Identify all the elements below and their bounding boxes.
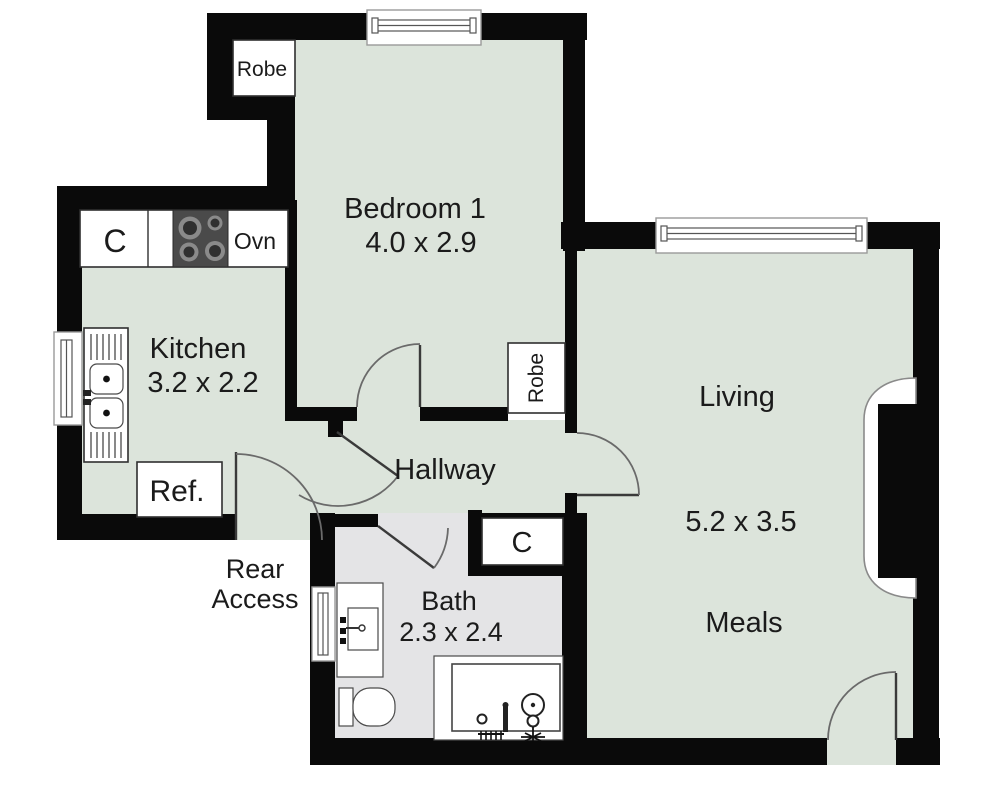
recess-panel xyxy=(878,404,918,578)
bathtub-icon xyxy=(434,656,563,741)
bath-dims: 2.3 x 2.4 xyxy=(399,617,503,647)
sink-tap-icon xyxy=(83,390,91,396)
bath-window-icon xyxy=(312,587,335,661)
rear-access-opening xyxy=(236,514,310,540)
robe-side-label: Robe xyxy=(525,353,548,403)
toilet-icon xyxy=(339,688,395,726)
kitchen-cupboard-label: C xyxy=(103,223,126,259)
bedroom1-dims: 4.0 x 2.9 xyxy=(365,227,476,259)
bath-door-opening xyxy=(378,513,468,527)
bedroom1-label: Bedroom 1 xyxy=(344,193,486,225)
floorplan-page: Bedroom 1 4.0 x 2.9 Kitchen 3.2 x 2.2 Ha… xyxy=(0,0,1000,796)
rear-access-label-2: Access xyxy=(211,584,298,614)
bedroom-window-icon xyxy=(367,10,481,45)
fridge-label: Ref. xyxy=(149,475,204,508)
living-meals-floor xyxy=(577,249,913,738)
bedroom-door-opening xyxy=(357,407,420,421)
kitchen-window-icon xyxy=(54,332,82,425)
living-door-opening xyxy=(565,433,577,493)
meals-label: Meals xyxy=(705,607,782,639)
oven-label: Ovn xyxy=(234,228,276,254)
kitchen-dims: 3.2 x 2.2 xyxy=(147,367,258,399)
living-window-icon xyxy=(656,218,867,253)
cooktop-icon xyxy=(173,210,228,267)
kitchen-label: Kitchen xyxy=(150,333,247,365)
rear-access-label-1: Rear xyxy=(226,554,285,584)
living-label: Living xyxy=(699,381,775,413)
hall-cupboard-label: C xyxy=(512,527,533,559)
sink-icon xyxy=(83,328,128,462)
vanity-icon xyxy=(337,583,383,677)
bath-label: Bath xyxy=(421,586,477,616)
living-wall-recess xyxy=(864,378,918,598)
hallway-label: Hallway xyxy=(394,454,496,486)
living-dims: 5.2 x 3.5 xyxy=(685,506,796,538)
floorplan-svg: Bedroom 1 4.0 x 2.9 Kitchen 3.2 x 2.2 Ha… xyxy=(0,0,1000,796)
entry-opening xyxy=(827,738,896,765)
robe-top-label: Robe xyxy=(237,58,287,81)
